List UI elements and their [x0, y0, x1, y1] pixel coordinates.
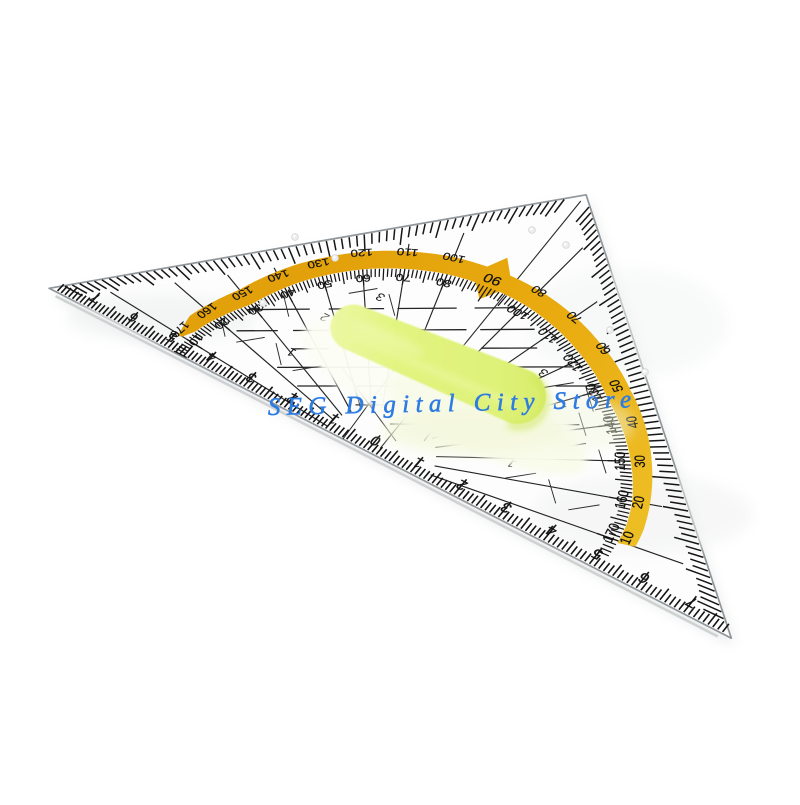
svg-text:110: 110 [395, 245, 419, 258]
svg-text:70: 70 [395, 271, 412, 284]
svg-text:150: 150 [611, 451, 628, 470]
svg-text:60: 60 [355, 272, 371, 285]
svg-text:120: 120 [350, 246, 374, 259]
svg-text:30: 30 [631, 455, 648, 468]
svg-text:20: 20 [628, 495, 648, 510]
